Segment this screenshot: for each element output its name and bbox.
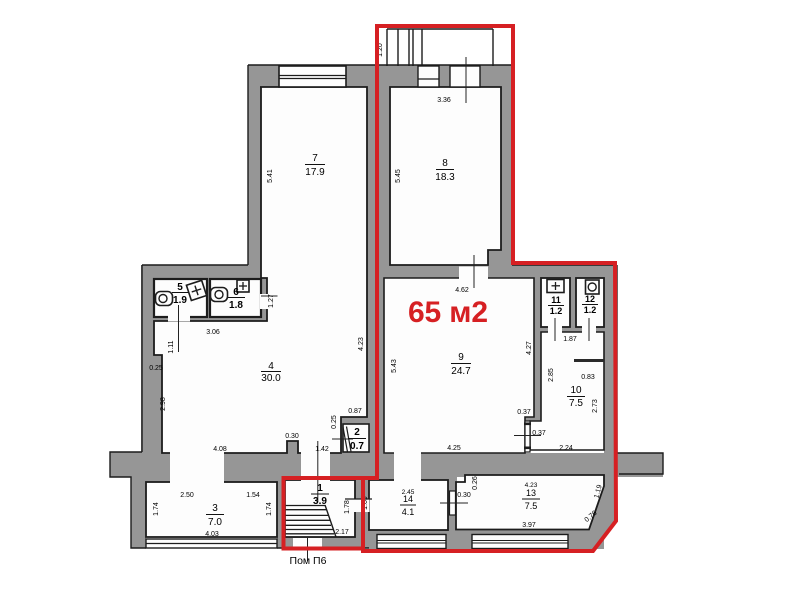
- svg-text:1: 1: [317, 483, 323, 494]
- svg-text:4.25: 4.25: [447, 445, 461, 452]
- svg-text:2.85: 2.85: [548, 368, 555, 382]
- svg-text:1.9: 1.9: [173, 295, 187, 306]
- svg-text:5.45: 5.45: [395, 169, 402, 183]
- svg-text:2.73: 2.73: [592, 399, 599, 413]
- svg-text:18.3: 18.3: [435, 172, 455, 183]
- svg-text:0.7: 0.7: [350, 441, 364, 452]
- svg-text:0.25: 0.25: [331, 415, 338, 429]
- svg-text:1.8: 1.8: [229, 300, 243, 311]
- svg-text:4: 4: [268, 361, 274, 372]
- svg-text:0.30: 0.30: [285, 433, 299, 440]
- svg-text:13: 13: [526, 488, 536, 498]
- svg-text:0.37: 0.37: [532, 430, 546, 437]
- svg-text:5.41: 5.41: [267, 169, 274, 183]
- svg-text:1.74: 1.74: [153, 502, 160, 516]
- svg-text:4.08: 4.08: [213, 446, 227, 453]
- svg-text:4.1: 4.1: [402, 507, 415, 517]
- svg-text:12: 12: [585, 294, 595, 304]
- svg-text:10: 10: [570, 385, 582, 396]
- svg-text:3.9: 3.9: [313, 496, 327, 507]
- svg-text:7.5: 7.5: [525, 501, 538, 511]
- svg-text:1.74: 1.74: [266, 502, 273, 516]
- svg-text:4.62: 4.62: [455, 287, 469, 294]
- svg-text:7.0: 7.0: [208, 517, 222, 528]
- svg-text:65 м2: 65 м2: [408, 296, 488, 329]
- svg-text:2.98: 2.98: [160, 397, 167, 411]
- svg-text:6: 6: [233, 287, 239, 298]
- svg-text:Пом П6: Пом П6: [290, 555, 327, 567]
- svg-text:2.50: 2.50: [180, 492, 194, 499]
- svg-text:3: 3: [212, 503, 218, 514]
- svg-text:1.2: 1.2: [584, 305, 597, 315]
- svg-text:4.03: 4.03: [205, 531, 219, 538]
- svg-text:1.78: 1.78: [344, 500, 351, 514]
- svg-text:3.36: 3.36: [437, 97, 451, 104]
- svg-text:0.30: 0.30: [457, 492, 471, 499]
- svg-text:24.7: 24.7: [451, 366, 471, 377]
- svg-text:14: 14: [403, 494, 413, 504]
- svg-text:30.0: 30.0: [261, 373, 281, 384]
- svg-text:2: 2: [354, 427, 360, 438]
- svg-text:0.37: 0.37: [517, 409, 531, 416]
- svg-text:11: 11: [551, 295, 561, 305]
- svg-text:0.25: 0.25: [149, 365, 163, 372]
- svg-text:17.9: 17.9: [305, 167, 325, 178]
- svg-text:2.17: 2.17: [335, 529, 349, 536]
- svg-text:9: 9: [458, 352, 464, 363]
- svg-text:5: 5: [177, 282, 183, 293]
- svg-text:1.42: 1.42: [315, 446, 329, 453]
- svg-text:0.26: 0.26: [472, 476, 479, 490]
- svg-text:1.11: 1.11: [168, 340, 175, 353]
- svg-text:1.87: 1.87: [563, 336, 577, 343]
- svg-text:7.5: 7.5: [569, 398, 583, 409]
- svg-text:2.24: 2.24: [559, 445, 573, 452]
- svg-text:3.06: 3.06: [206, 329, 220, 336]
- svg-text:0.87: 0.87: [348, 408, 362, 415]
- svg-text:5.43: 5.43: [391, 359, 398, 373]
- svg-text:7: 7: [312, 153, 318, 164]
- svg-text:1.2: 1.2: [550, 306, 563, 316]
- svg-text:1.54: 1.54: [246, 492, 260, 499]
- svg-text:0.83: 0.83: [581, 374, 595, 381]
- svg-text:8: 8: [442, 158, 448, 169]
- svg-text:4.23: 4.23: [358, 337, 365, 351]
- svg-text:3.97: 3.97: [522, 522, 536, 529]
- svg-text:4.27: 4.27: [526, 341, 533, 355]
- svg-text:1.27: 1.27: [268, 294, 275, 308]
